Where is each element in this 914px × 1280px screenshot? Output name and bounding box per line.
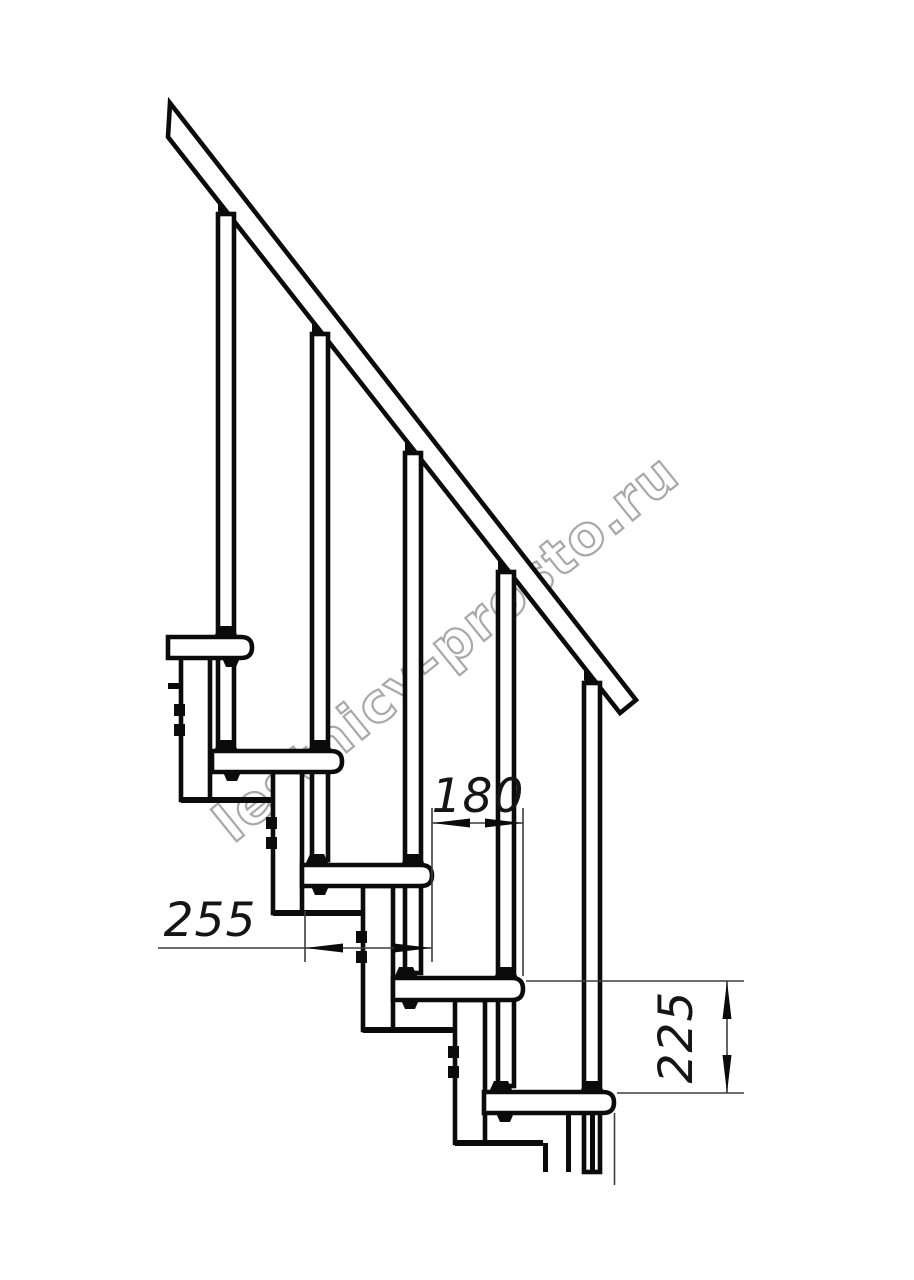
stringer-module-4	[455, 1000, 485, 1143]
bolt-icon	[266, 817, 277, 829]
baluster-4	[498, 572, 514, 1086]
baluster-3	[405, 453, 421, 973]
bolt-icon	[266, 837, 277, 849]
nut-icon	[496, 1113, 514, 1122]
stringer-module-2	[273, 772, 302, 913]
module-plate	[181, 797, 273, 803]
dimension-225-label: 225	[649, 991, 704, 1084]
handrail	[168, 103, 636, 713]
module-plate	[363, 1027, 455, 1033]
bolt-icon	[448, 1066, 459, 1078]
staircase-drawing-page: lestnicy-prosto.ru	[0, 0, 914, 1280]
nut-icon	[401, 1000, 419, 1009]
dimension-180-label: 180	[432, 769, 525, 824]
dimension-255-label: 255	[164, 893, 257, 948]
arrowhead-icon	[723, 981, 732, 1019]
bolt-icon	[174, 704, 185, 716]
staircase-elevation-drawing: lestnicy-prosto.ru	[0, 0, 914, 1280]
module-plate	[273, 910, 363, 916]
stringer-module-5-edge	[590, 1115, 595, 1172]
tread-5	[484, 1092, 614, 1113]
bolt-icon	[174, 724, 185, 736]
baluster-2	[312, 334, 328, 860]
bolt-icon	[356, 951, 367, 963]
bolt-icon	[448, 1046, 459, 1058]
stringer-module-5-edge	[543, 1143, 548, 1172]
arrowhead-icon	[305, 944, 343, 953]
tread-2	[212, 751, 342, 772]
module-plate	[455, 1140, 543, 1146]
nut-icon	[311, 886, 329, 895]
stringer-module-3	[363, 886, 393, 1030]
tread-1	[168, 637, 252, 658]
stringer-module-1	[181, 657, 210, 800]
stringer-module-5-edge	[566, 1115, 571, 1172]
tread-3	[302, 865, 432, 886]
arrowhead-icon	[723, 1055, 732, 1093]
bolt-icon	[356, 931, 367, 943]
tread-4	[393, 978, 523, 1000]
dimension-225: 225	[526, 981, 744, 1093]
module-plate	[168, 683, 181, 689]
